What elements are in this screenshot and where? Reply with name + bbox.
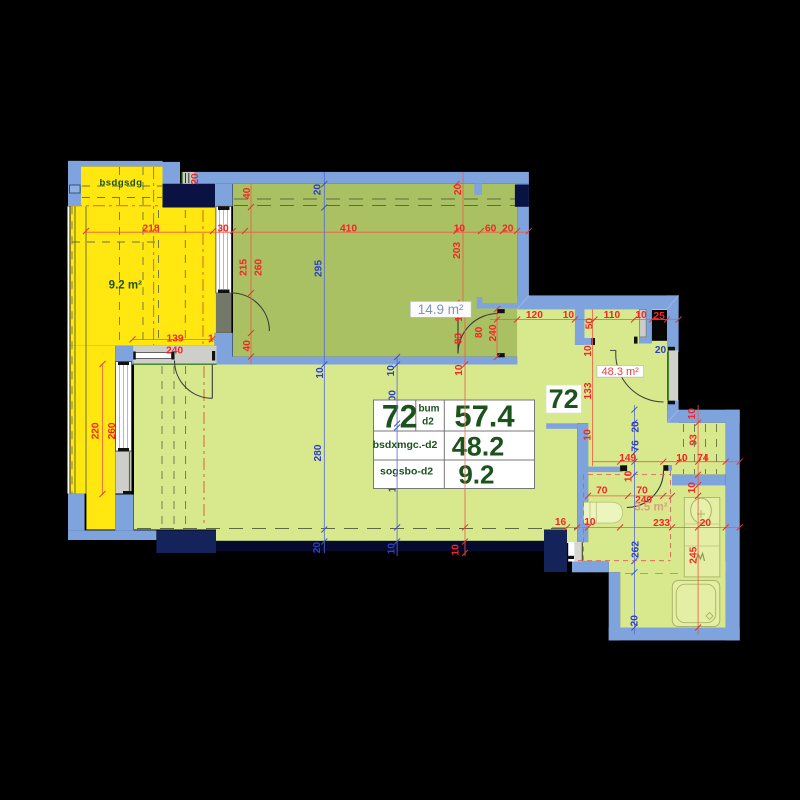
svg-text:16: 16 [555, 517, 567, 528]
svg-text:10: 10 [676, 453, 688, 464]
svg-text:295: 295 [313, 260, 324, 277]
svg-text:20: 20 [453, 183, 464, 195]
svg-text:10: 10 [454, 364, 465, 376]
svg-text:76: 76 [631, 440, 642, 452]
svg-text:bsdgsdg: bsdgsdg [99, 178, 142, 189]
svg-text:bsdxmgc.-d2: bsdxmgc.-d2 [373, 439, 438, 451]
svg-text:93: 93 [688, 434, 699, 446]
svg-text:48.2: 48.2 [452, 432, 505, 462]
svg-text:260: 260 [253, 259, 264, 276]
svg-text:262: 262 [631, 541, 642, 558]
svg-text:48.3 m²: 48.3 m² [602, 366, 640, 378]
svg-text:sogsbo-d2: sogsbo-d2 [380, 466, 433, 478]
svg-text:10: 10 [450, 544, 461, 556]
svg-text:10: 10 [315, 367, 326, 379]
svg-text:233: 233 [653, 518, 670, 529]
svg-text:139: 139 [167, 333, 184, 344]
svg-text:10: 10 [623, 470, 634, 482]
svg-text:20: 20 [502, 224, 514, 235]
svg-text:9.2: 9.2 [458, 459, 494, 489]
svg-text:70: 70 [596, 485, 608, 496]
svg-text:410: 410 [340, 224, 357, 235]
svg-text:280: 280 [313, 444, 324, 461]
svg-text:245: 245 [688, 546, 699, 563]
svg-text:72: 72 [382, 399, 418, 435]
svg-text:218: 218 [143, 224, 160, 235]
svg-text:14.9 m²: 14.9 m² [418, 302, 464, 317]
svg-text:149: 149 [619, 453, 636, 464]
svg-text:3.5 m²: 3.5 m² [634, 501, 667, 513]
svg-text:20: 20 [312, 542, 323, 554]
svg-text:10: 10 [584, 517, 596, 528]
svg-text:10: 10 [635, 310, 647, 321]
svg-text:20: 20 [190, 173, 201, 185]
svg-text:10: 10 [454, 224, 466, 235]
svg-text:30: 30 [217, 224, 229, 235]
svg-text:10: 10 [687, 482, 698, 494]
svg-text:10: 10 [563, 310, 575, 321]
svg-text:10: 10 [583, 429, 594, 441]
svg-text:60: 60 [485, 224, 497, 235]
svg-text:20: 20 [700, 518, 712, 529]
svg-text:83: 83 [453, 333, 464, 345]
svg-text:40: 40 [242, 340, 253, 352]
svg-text:40: 40 [242, 187, 253, 199]
svg-text:80: 80 [474, 326, 485, 338]
svg-text:215: 215 [239, 259, 250, 276]
svg-text:20: 20 [312, 184, 323, 196]
svg-text:9.2 m²: 9.2 m² [109, 279, 142, 291]
svg-text:10: 10 [687, 408, 698, 420]
svg-text:203: 203 [452, 242, 463, 259]
svg-text:1: 1 [208, 334, 214, 345]
svg-text:133: 133 [583, 382, 594, 399]
svg-text:74: 74 [697, 453, 709, 464]
svg-text:57.4: 57.4 [454, 399, 515, 434]
svg-text:20: 20 [655, 345, 667, 356]
svg-text:240: 240 [166, 345, 183, 356]
svg-text:110: 110 [604, 310, 621, 321]
svg-text:d2: d2 [422, 417, 434, 428]
svg-text:220: 220 [91, 422, 102, 439]
svg-text:20: 20 [630, 421, 641, 433]
svg-text:10: 10 [386, 365, 397, 377]
svg-text:10: 10 [583, 345, 594, 357]
svg-text:25: 25 [654, 311, 666, 322]
svg-text:72: 72 [549, 384, 579, 414]
svg-text:10: 10 [387, 543, 398, 555]
svg-text:50: 50 [585, 318, 596, 330]
svg-text:bum: bum [418, 404, 439, 415]
svg-text:240: 240 [488, 324, 499, 341]
svg-text:20: 20 [630, 615, 641, 627]
svg-text:260: 260 [107, 422, 118, 439]
svg-text:120: 120 [526, 310, 543, 321]
